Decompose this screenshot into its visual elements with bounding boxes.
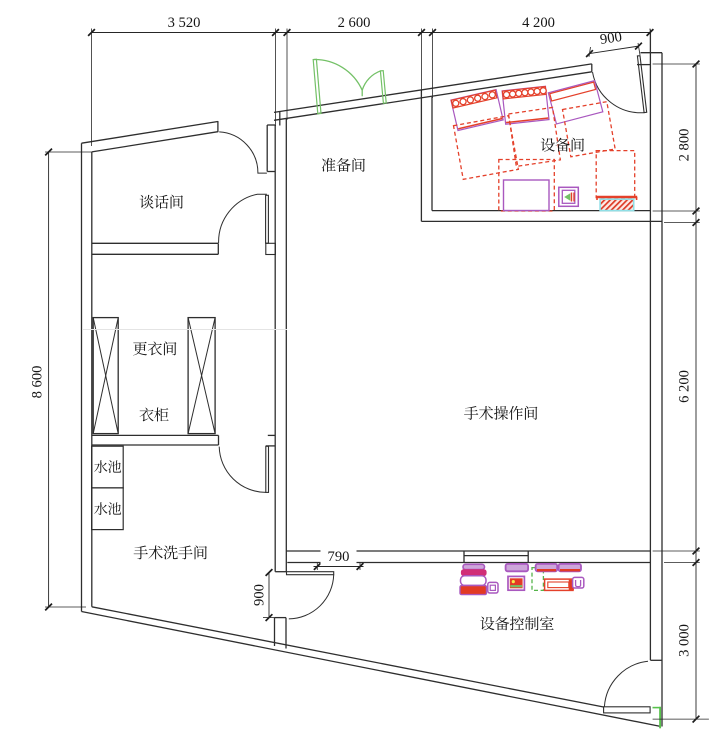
svg-text:2 800: 2 800 [677, 129, 693, 162]
svg-text:900: 900 [252, 584, 268, 606]
svg-text:4 200: 4 200 [522, 15, 555, 31]
svg-text:900: 900 [599, 29, 623, 48]
svg-text:3 000: 3 000 [677, 624, 693, 657]
svg-text:790: 790 [328, 549, 350, 565]
svg-text:2 600: 2 600 [338, 15, 371, 31]
svg-text:3 520: 3 520 [168, 15, 201, 31]
svg-text:6 200: 6 200 [677, 370, 693, 403]
svg-text:8 600: 8 600 [30, 366, 46, 399]
